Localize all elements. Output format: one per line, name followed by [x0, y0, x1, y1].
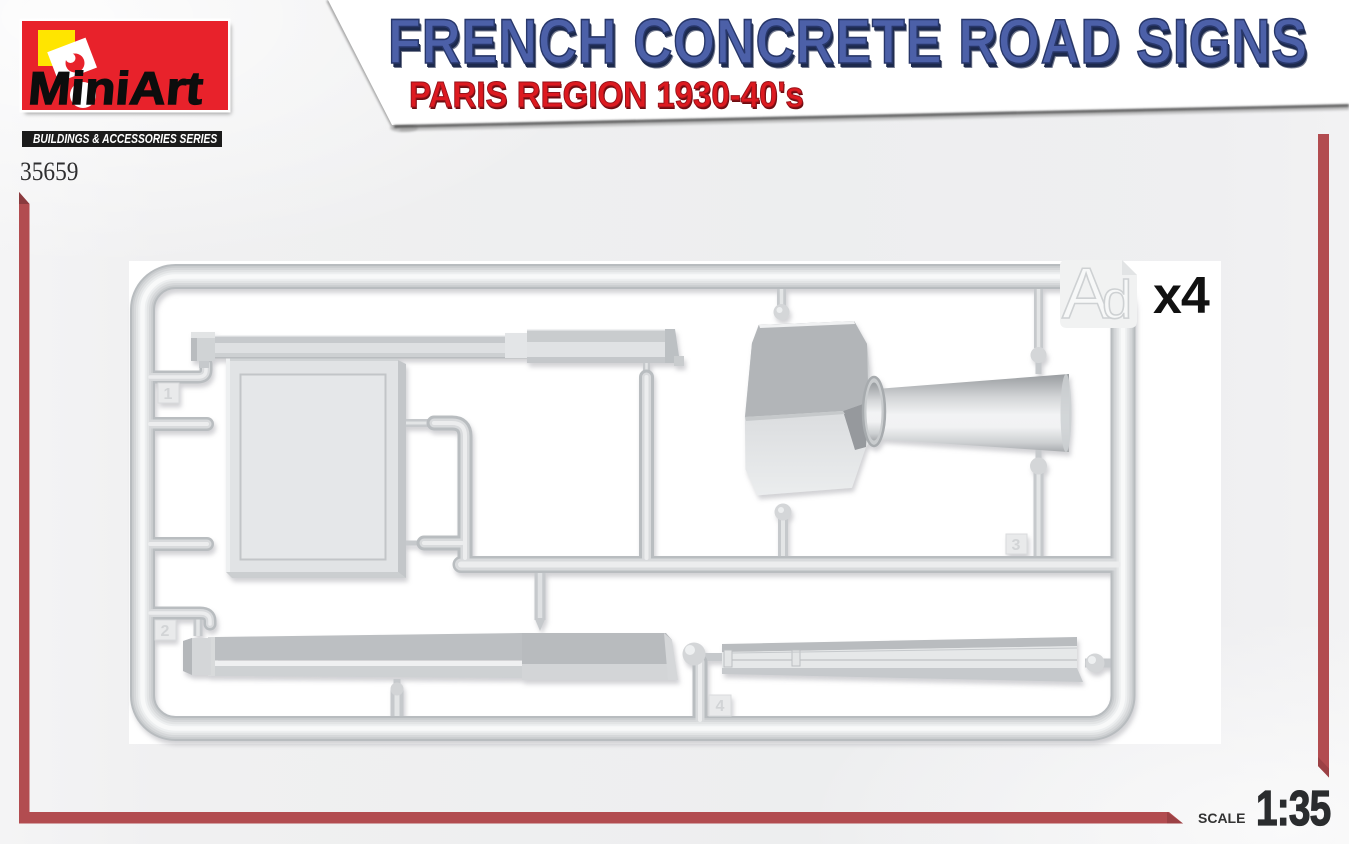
svg-text:1: 1 — [164, 386, 173, 403]
svg-text:3: 3 — [1012, 537, 1021, 554]
svg-text:d: d — [1102, 270, 1132, 330]
svg-text:2: 2 — [161, 623, 170, 640]
svg-text:4: 4 — [716, 698, 725, 715]
